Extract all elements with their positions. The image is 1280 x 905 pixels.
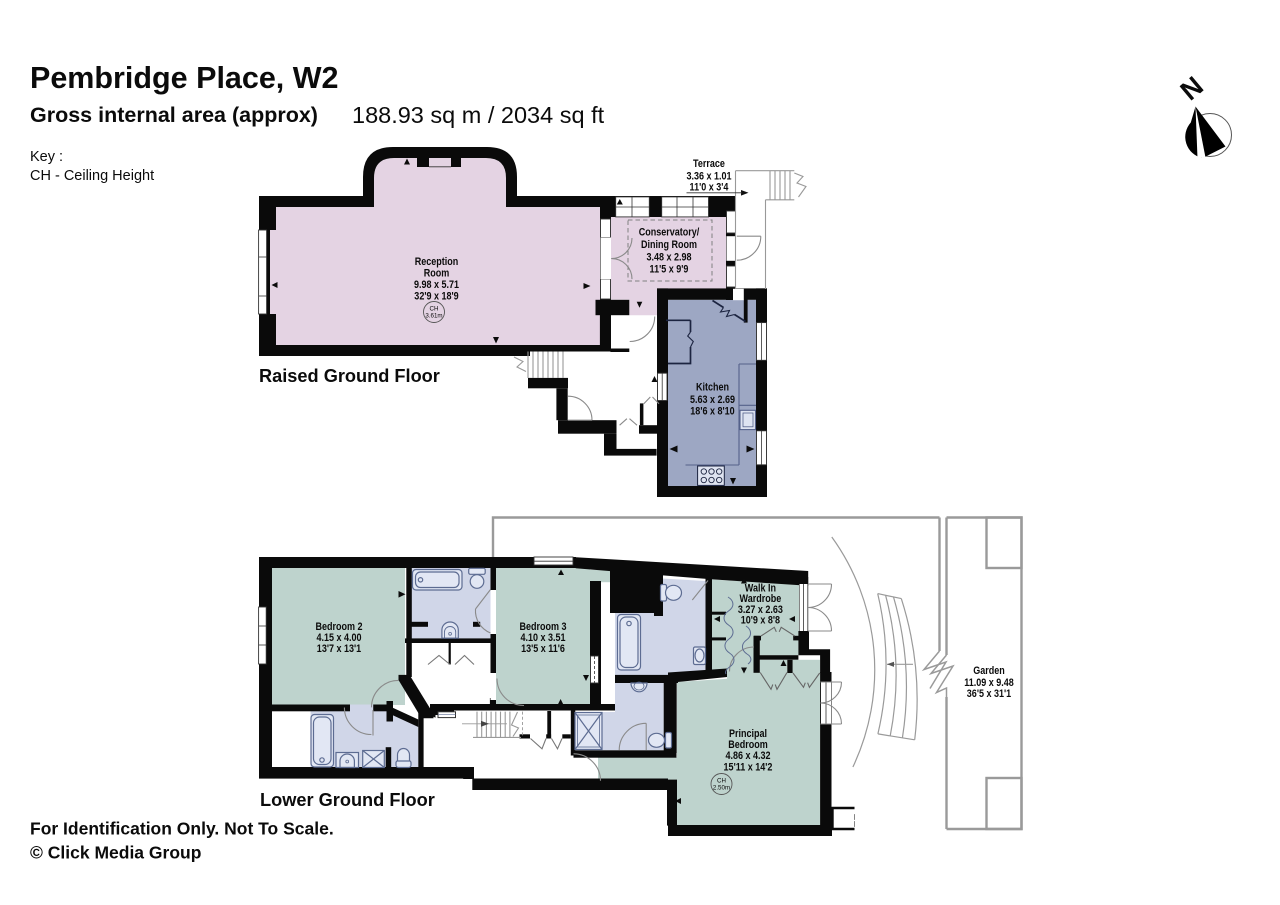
svg-text:Terrace: Terrace bbox=[693, 158, 725, 170]
svg-text:For Identification Only. Not T: For Identification Only. Not To Scale. bbox=[30, 819, 334, 839]
svg-text:10'9 x 8'8: 10'9 x 8'8 bbox=[741, 615, 781, 627]
svg-text:Garden: Garden bbox=[973, 665, 1005, 677]
svg-text:32'9 x 18'9: 32'9 x 18'9 bbox=[414, 291, 459, 303]
svg-text:4.86 x 4.32: 4.86 x 4.32 bbox=[725, 750, 770, 762]
svg-text:188.93 sq m / 2034 sq ft: 188.93 sq m / 2034 sq ft bbox=[352, 102, 605, 128]
svg-text:3.48 x 2.98: 3.48 x 2.98 bbox=[646, 252, 691, 264]
svg-text:13'7 x 13'1: 13'7 x 13'1 bbox=[317, 643, 362, 655]
svg-text:CH - Ceiling Height: CH - Ceiling Height bbox=[30, 168, 154, 184]
svg-text:© Click Media Group: © Click Media Group bbox=[30, 843, 201, 863]
svg-text:Raised Ground Floor: Raised Ground Floor bbox=[259, 366, 440, 386]
svg-text:Dining Room: Dining Room bbox=[641, 239, 697, 251]
svg-text:36'5 x 31'1: 36'5 x 31'1 bbox=[967, 688, 1012, 700]
svg-text:9.98 x 5.71: 9.98 x 5.71 bbox=[414, 279, 459, 291]
svg-text:13'5 x 11'6: 13'5 x 11'6 bbox=[521, 643, 565, 655]
svg-text:CH: CH bbox=[717, 778, 726, 785]
svg-text:Pembridge Place, W2: Pembridge Place, W2 bbox=[30, 61, 339, 95]
svg-text:Reception: Reception bbox=[415, 256, 459, 268]
svg-text:Key :: Key : bbox=[30, 149, 63, 165]
svg-text:15'11 x 14'2: 15'11 x 14'2 bbox=[724, 762, 773, 774]
svg-text:11'5 x 9'9: 11'5 x 9'9 bbox=[650, 264, 689, 276]
svg-text:Conservatory/: Conservatory/ bbox=[639, 227, 700, 239]
svg-text:11'0 x 3'4: 11'0 x 3'4 bbox=[690, 182, 729, 194]
svg-text:Room: Room bbox=[424, 268, 450, 280]
svg-text:CH: CH bbox=[430, 306, 439, 313]
svg-text:Gross internal area (approx): Gross internal area (approx) bbox=[30, 103, 318, 127]
svg-text:5.63 x 2.69: 5.63 x 2.69 bbox=[690, 394, 735, 406]
svg-text:3.61m: 3.61m bbox=[425, 313, 442, 320]
svg-text:18'6 x 8'10: 18'6 x 8'10 bbox=[690, 406, 735, 418]
svg-text:2.50m: 2.50m bbox=[713, 785, 730, 792]
svg-text:Lower Ground Floor: Lower Ground Floor bbox=[260, 790, 435, 810]
svg-text:Kitchen: Kitchen bbox=[696, 382, 729, 394]
